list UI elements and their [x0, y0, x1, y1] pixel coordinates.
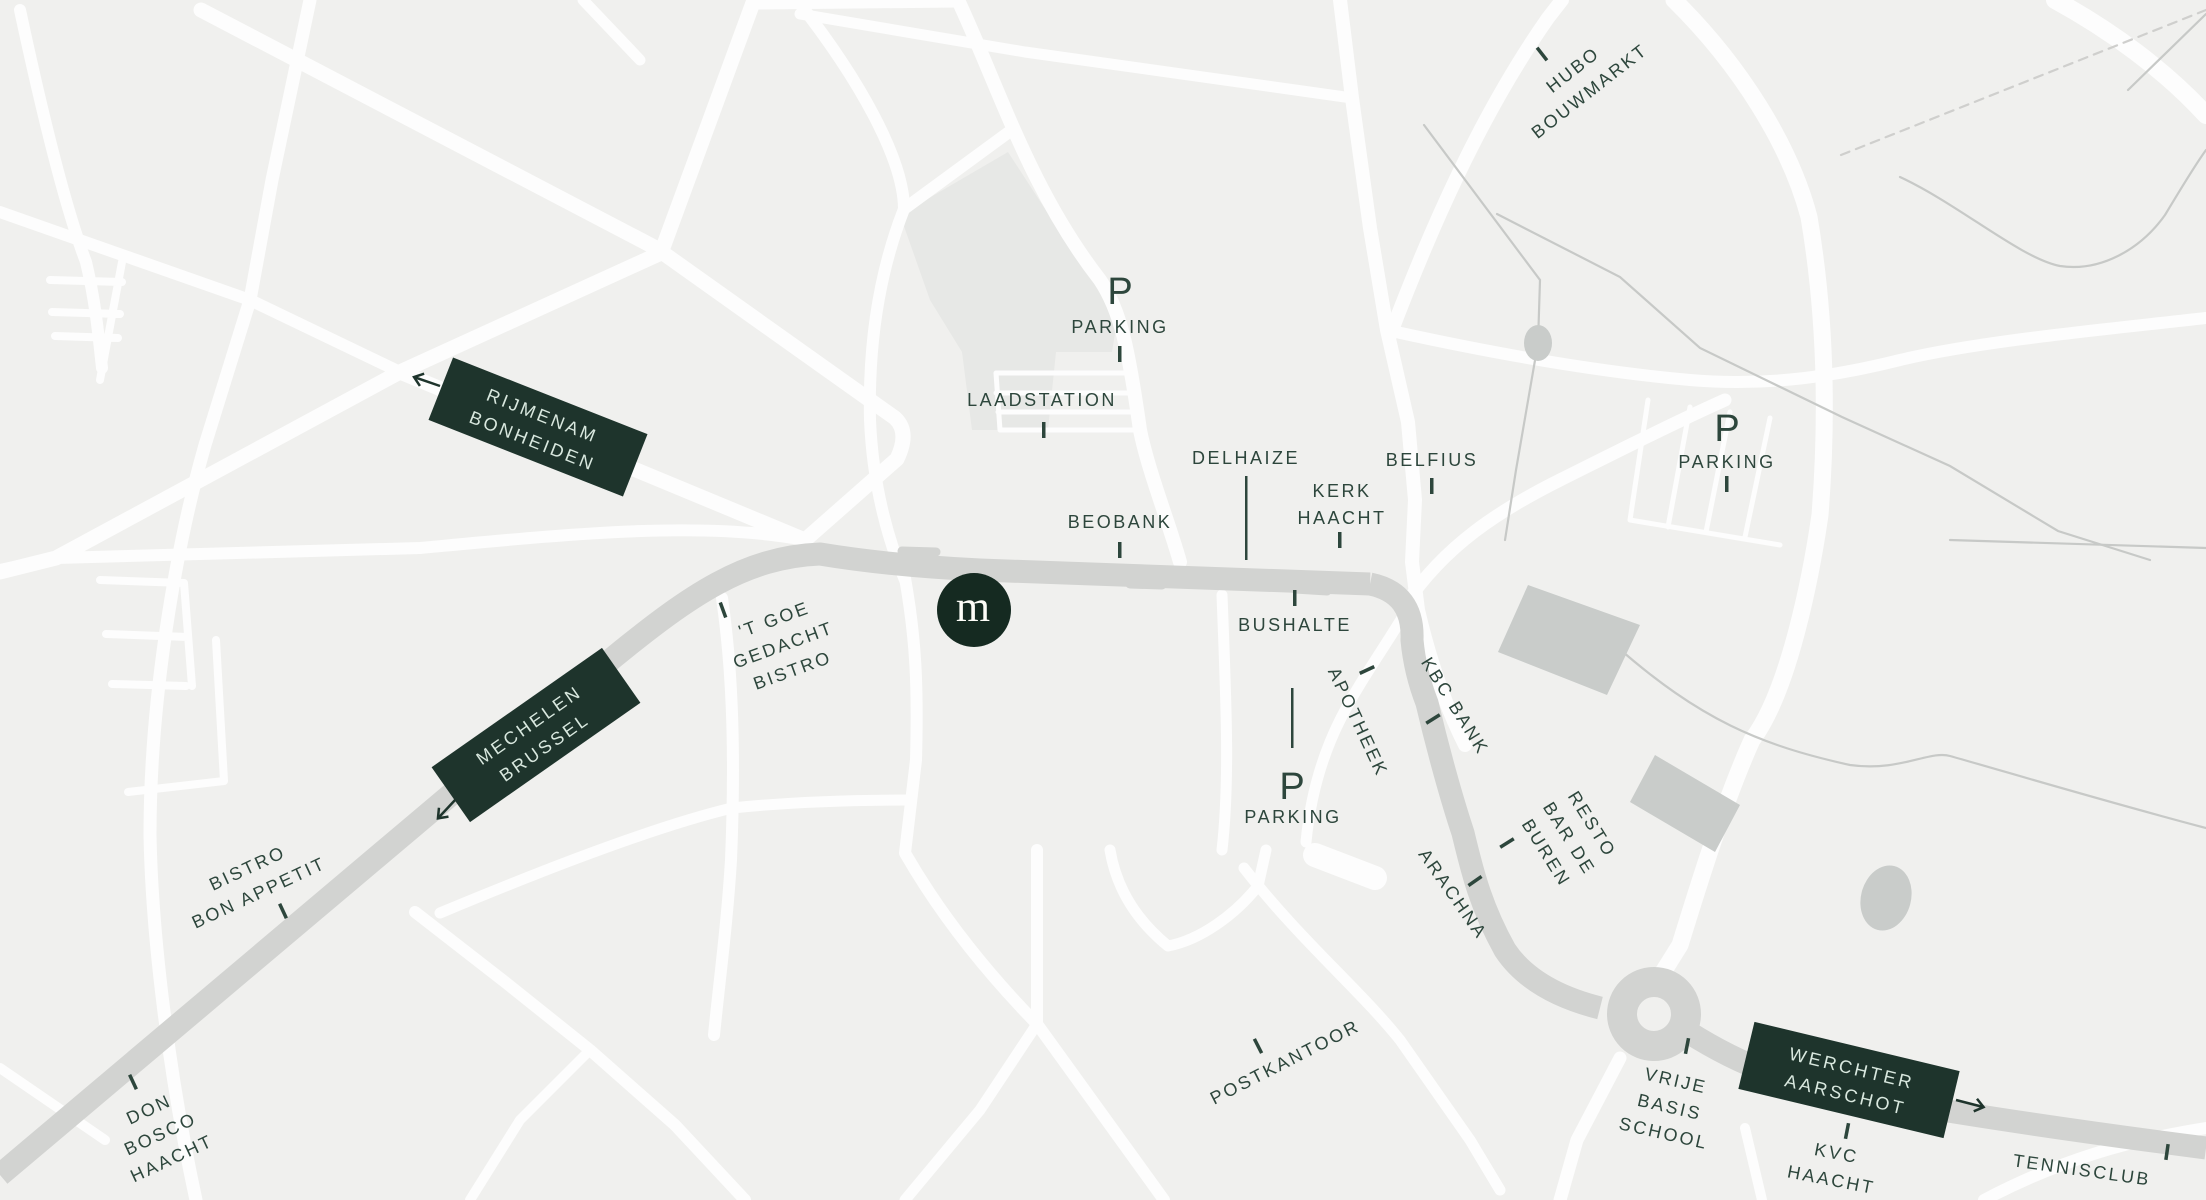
- svg-text:HAACHT: HAACHT: [1297, 508, 1386, 528]
- svg-text:DELHAIZE: DELHAIZE: [1192, 448, 1300, 468]
- svg-text:PARKING: PARKING: [1678, 452, 1775, 472]
- svg-text:PARKING: PARKING: [1244, 807, 1341, 827]
- svg-text:KERK: KERK: [1312, 481, 1371, 501]
- svg-text:BEOBANK: BEOBANK: [1068, 512, 1173, 532]
- svg-text:PARKING: PARKING: [1071, 317, 1168, 337]
- svg-text:BUSHALTE: BUSHALTE: [1238, 615, 1352, 635]
- svg-text:BELFIUS: BELFIUS: [1386, 450, 1479, 470]
- svg-text:P: P: [1107, 271, 1132, 313]
- svg-text:LAADSTATION: LAADSTATION: [967, 390, 1117, 410]
- svg-text:P: P: [1279, 766, 1304, 808]
- svg-text:P: P: [1714, 408, 1739, 450]
